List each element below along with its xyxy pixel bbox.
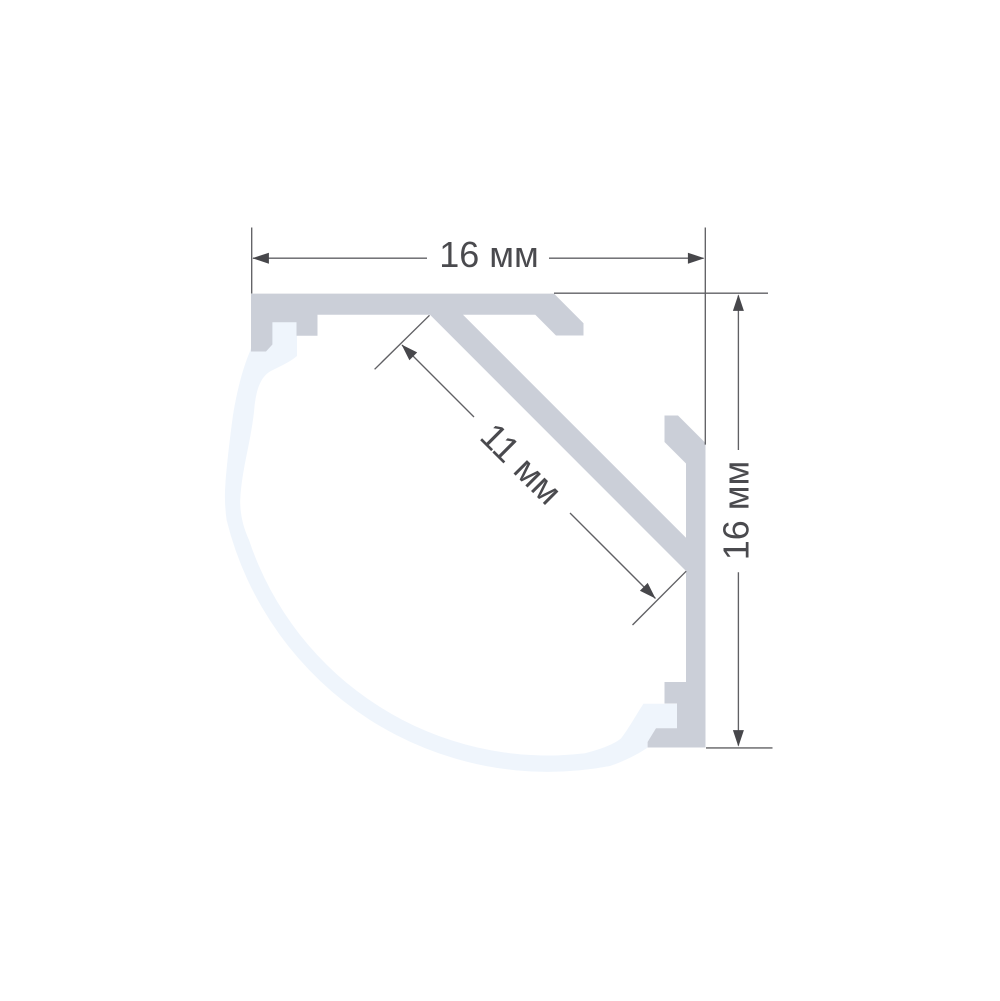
svg-text:16 мм: 16 мм [716, 461, 757, 561]
svg-text:16 мм: 16 мм [439, 234, 539, 275]
